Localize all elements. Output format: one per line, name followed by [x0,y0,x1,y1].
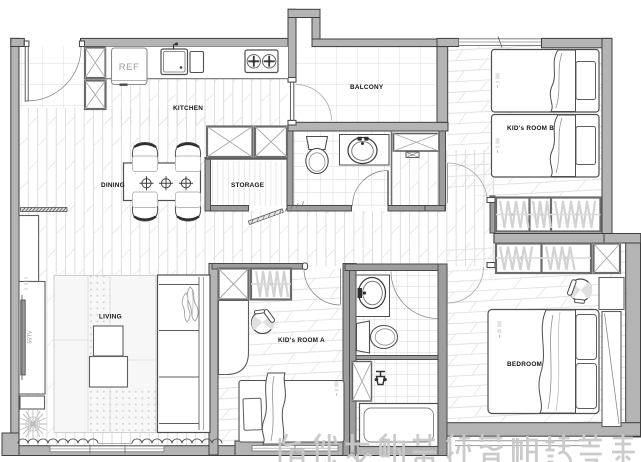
svg-text:KID's ROOM A: KID's ROOM A [278,337,325,344]
svg-text:LIVING: LIVING [99,314,122,321]
svg-text:KID's ROOM B: KID's ROOM B [507,125,554,132]
svg-text:REF: REF [119,62,140,73]
svg-text:STORAGE: STORAGE [231,182,265,189]
svg-text:DINING: DINING [101,182,125,189]
svg-text:55'TV: 55'TV [28,330,34,344]
svg-text:KITCHEN: KITCHEN [173,105,203,112]
svg-text:BALCONY: BALCONY [350,84,384,91]
svg-text:FCU: FCU [405,152,413,157]
svg-text:BEDROOM: BEDROOM [507,361,542,368]
